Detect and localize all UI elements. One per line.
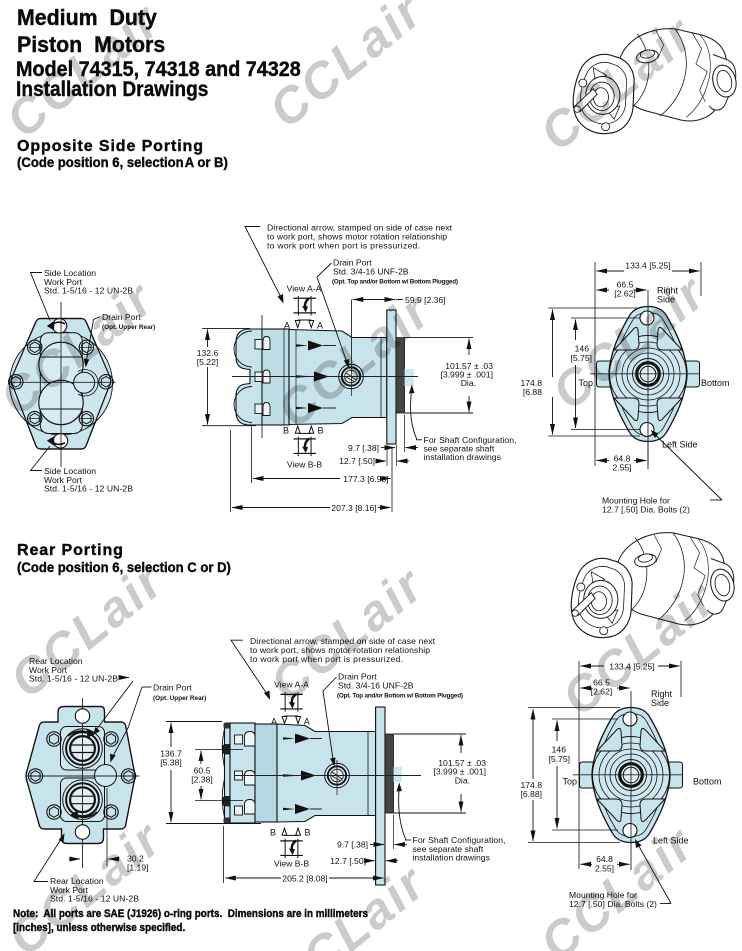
svg-text:CCLair: CCLair: [0, 810, 172, 951]
svg-text:CCLair: CCLair: [0, 270, 164, 427]
svg-text:CCLair: CCLair: [552, 570, 727, 727]
svg-text:CCLair: CCLair: [530, 815, 705, 951]
svg-text:CCLair: CCLair: [262, 854, 437, 951]
svg-text:CCLair: CCLair: [267, 282, 442, 439]
svg-text:CCLair: CCLair: [260, 556, 435, 713]
svg-text:CCLair: CCLair: [0, 552, 174, 709]
svg-text:CCLair: CCLair: [259, 0, 434, 139]
svg-text:CCLair: CCLair: [530, 5, 705, 162]
svg-text:CCLair: CCLair: [542, 264, 717, 421]
svg-text:CCLair: CCLair: [0, 0, 170, 149]
